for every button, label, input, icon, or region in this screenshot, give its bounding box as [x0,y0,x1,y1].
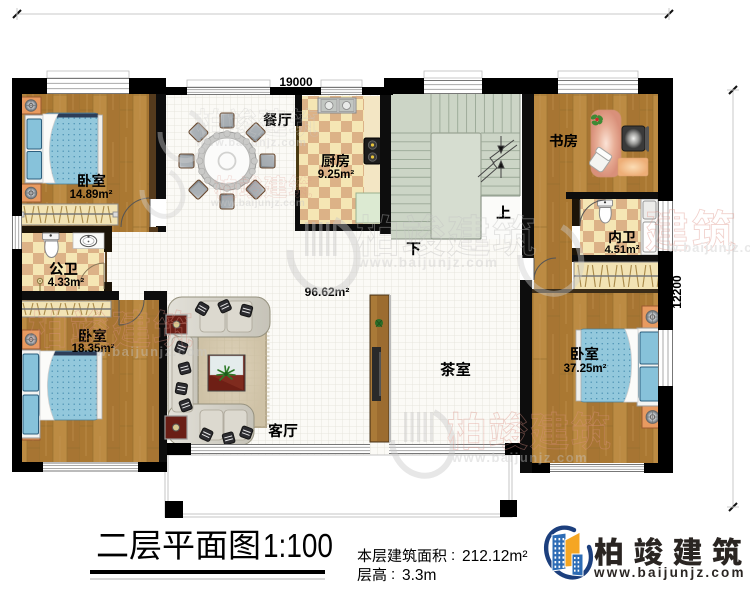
svg-text:9.25m²: 9.25m² [318,169,355,181]
svg-text:w.baijunjz.com: w.baijunjz.com [667,240,750,255]
svg-text:37.25m²: 37.25m² [564,363,607,375]
svg-text:3.3m: 3.3m [402,567,436,584]
svg-text:212.12m²: 212.12m² [462,548,527,565]
svg-text:19000: 19000 [279,75,313,89]
svg-text:4.51m²: 4.51m² [605,244,640,256]
svg-text::: : [391,566,395,583]
svg-text:www.baijunjz.com: www.baijunjz.com [195,137,307,149]
svg-text:14.89m²: 14.89m² [70,189,113,201]
svg-text:w.baijunjz.com: w.baijunjz.com [95,344,209,359]
svg-text:www.baijunjz.com: www.baijunjz.com [593,565,746,580]
svg-text:4.33m²: 4.33m² [48,277,85,289]
svg-text:www.baijunjz.com: www.baijunjz.com [210,198,305,209]
svg-text:www.baijunjz.com: www.baijunjz.com [357,255,499,270]
svg-text:1:100: 1:100 [263,527,333,564]
svg-text::: : [451,547,455,564]
svg-text:www.baijunjz.com: www.baijunjz.com [451,450,588,465]
